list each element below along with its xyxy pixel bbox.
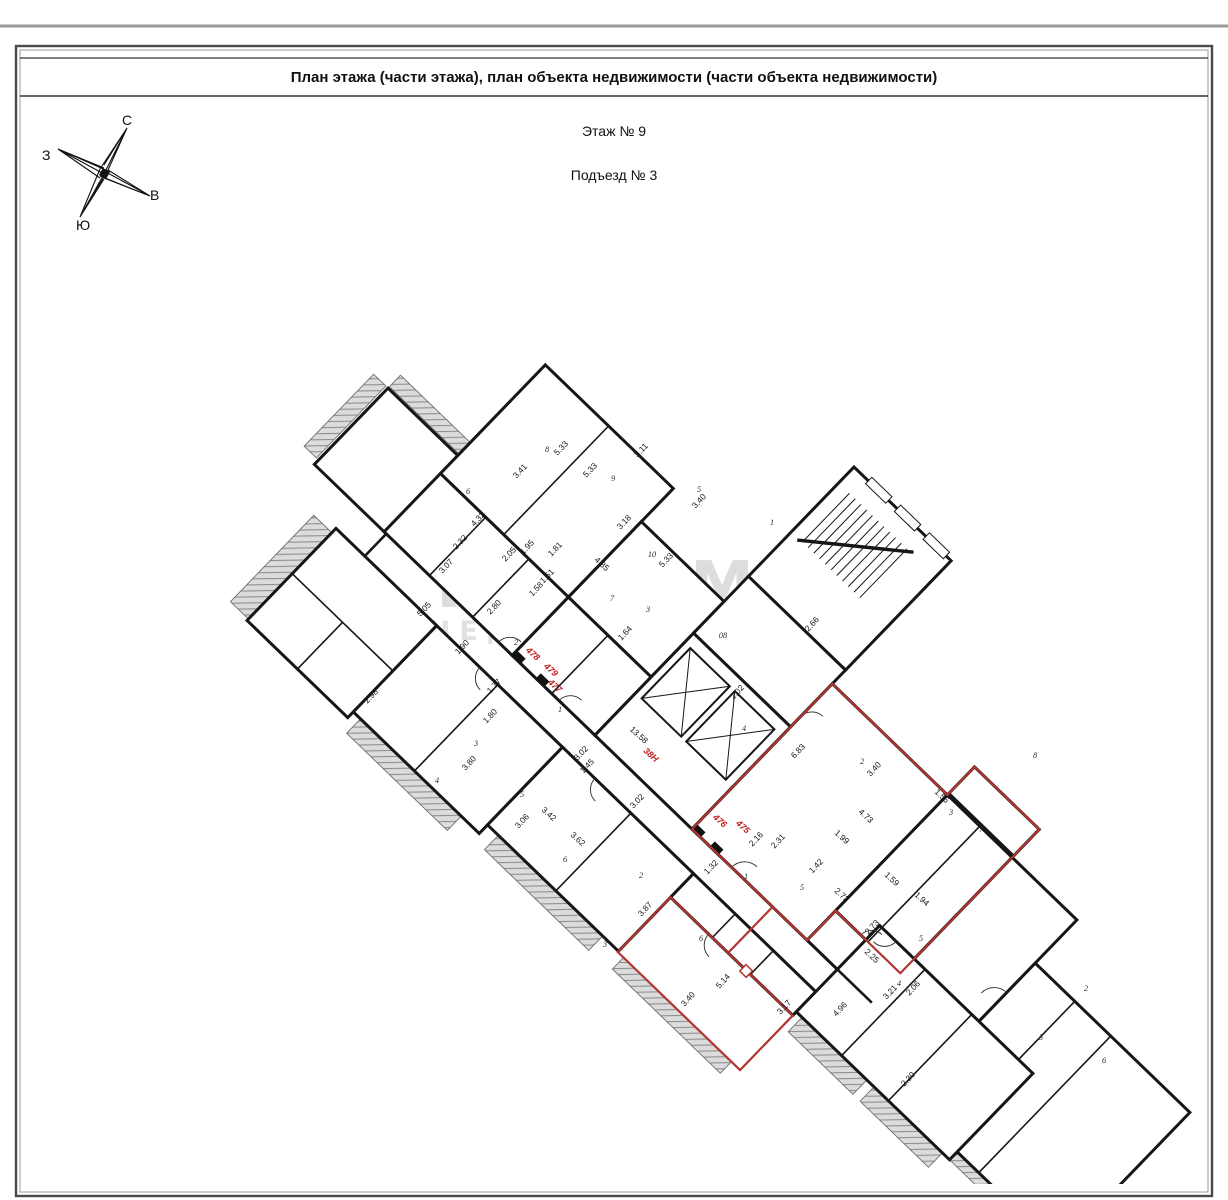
scanned-floor-plan-page: План этажа (части этажа), план объекта н… xyxy=(0,0,1228,1200)
room-number: 2 xyxy=(514,638,518,647)
room-number: 3 xyxy=(948,808,953,817)
floor-label: Этаж № 9 xyxy=(582,123,646,139)
room-number: 3 xyxy=(602,940,607,949)
dimension-label: 3.02 xyxy=(628,791,647,810)
room-number: 2 xyxy=(639,871,643,880)
room-number: 5 xyxy=(697,485,701,494)
dimension-label: 1.32 xyxy=(702,857,721,876)
room-number: 1 xyxy=(744,872,748,881)
dimension-label: 3.40 xyxy=(690,491,709,510)
compass-rose-icon: С В Ю З xyxy=(42,112,159,233)
room-number: 3 xyxy=(473,739,478,748)
compass-west-label: З xyxy=(42,147,50,163)
compass-south-label: Ю xyxy=(76,217,90,233)
room-number: 1 xyxy=(770,518,774,527)
room-number: 5 xyxy=(800,883,804,892)
room-number: 4 xyxy=(897,979,901,988)
compass-east-label: В xyxy=(150,187,159,203)
room-number: 4 xyxy=(435,776,439,785)
room-number: 8 xyxy=(545,445,549,454)
document-title: План этажа (части этажа), план объекта н… xyxy=(291,69,938,86)
dimension-label: 5.14 xyxy=(714,971,733,990)
room-number: 8 xyxy=(1033,751,1037,760)
room-number: 3 xyxy=(645,605,650,614)
room-number: 5 xyxy=(520,790,524,799)
room-number: 08 xyxy=(719,631,727,640)
dimension-label: 3.40 xyxy=(679,989,698,1008)
room-number: 2 xyxy=(1084,984,1088,993)
compass-star xyxy=(58,128,150,217)
room-number: 9 xyxy=(611,474,615,483)
room-number: 3 xyxy=(1038,1033,1043,1042)
room-number: 1 xyxy=(558,705,562,714)
compass-north-label: С xyxy=(122,112,132,128)
room-number: 4 xyxy=(742,724,746,733)
room-number: 5 xyxy=(919,934,923,943)
room-number: 6 xyxy=(699,934,704,943)
floor-plan-drawing xyxy=(181,179,1228,1200)
room-number: 2 xyxy=(860,757,864,766)
room-number: 10 xyxy=(648,550,656,559)
entrance-label: Подъезд № 3 xyxy=(571,167,658,183)
floor-plan-document: План этажа (части этажа), план объекта н… xyxy=(0,0,1228,1200)
